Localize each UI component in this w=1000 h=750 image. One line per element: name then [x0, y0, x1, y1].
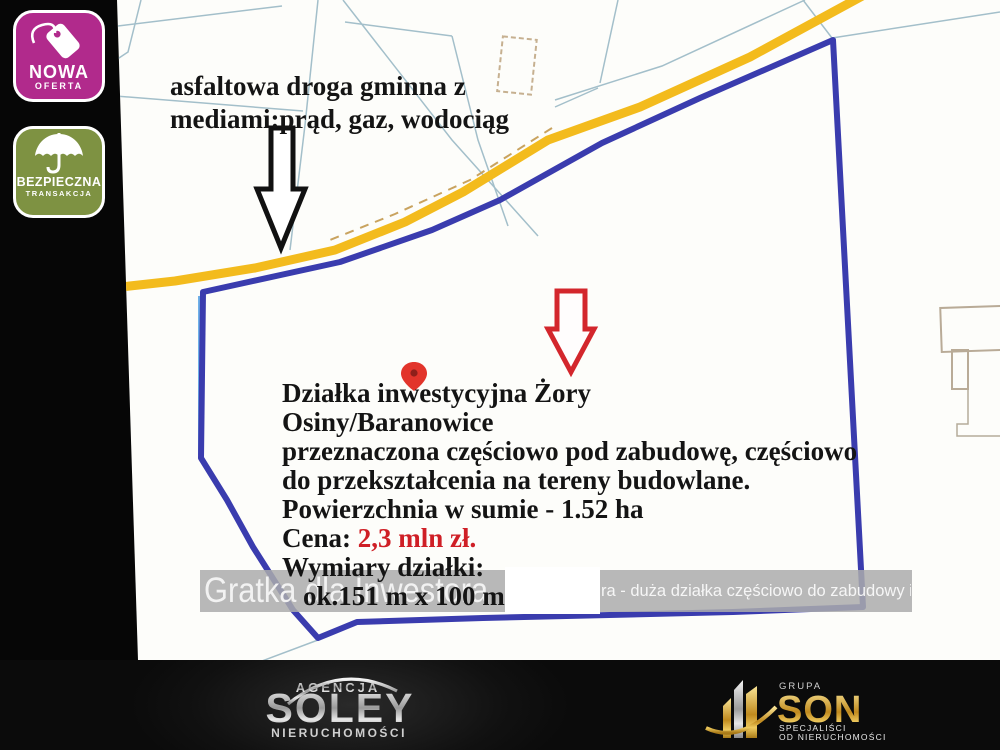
footer-logos: AGENCJA SOLEY NIERUCHOMOŚCI GRUPA SON SP… — [0, 660, 1000, 750]
price-tag-icon — [16, 15, 102, 63]
watermark-listing-text: ra - duża działka częściowo do zabudowy … — [601, 570, 911, 612]
badge-new-offer-subtitle: OFERTA — [16, 81, 102, 92]
price-label: Cena: — [282, 523, 358, 553]
son-logo: GRUPA SON SPECJALIŚCI OD NIERUCHOMOŚCI — [706, 680, 887, 742]
badge-safe-transaction: BEZPIECZNA TRANSAKCJA — [13, 126, 105, 218]
badge-new-offer-title: NOWA — [16, 63, 102, 81]
listing-zoning-1: przeznaczona częściowo pod zabudowę, czę… — [282, 437, 857, 466]
soley-name: SOLEY — [266, 685, 415, 731]
road-annotation: asfaltowa droga gminna z mediami:prąd, g… — [170, 70, 509, 136]
footer-bar: AGENCJA SOLEY NIERUCHOMOŚCI GRUPA SON SP… — [0, 660, 1000, 750]
umbrella-icon — [16, 131, 102, 175]
road-annotation-line2: mediami:prąd, gaz, wodociąg — [170, 103, 509, 136]
badge-new-offer: NOWA OFERTA — [13, 10, 105, 102]
son-building-icon — [706, 680, 776, 738]
price-value: 2,3 mln zł. — [358, 523, 477, 553]
son-sub-label-2: OD NIERUCHOMOŚCI — [779, 731, 887, 742]
watermark-white-patch — [505, 567, 600, 614]
real-estate-ad-image: asfaltowa droga gminna z mediami:prąd, g… — [0, 0, 1000, 750]
soley-bottom-label: NIERUCHOMOŚCI — [271, 725, 407, 740]
soley-logo: AGENCJA SOLEY NIERUCHOMOŚCI — [266, 679, 415, 740]
listing-title: Działka inwestycyjna Żory — [282, 379, 857, 408]
listing-zoning-2: do przekształcenia na tereny budowlane. — [282, 466, 857, 495]
badge-safe-subtitle: TRANSAKCJA — [16, 189, 102, 199]
road-annotation-line1: asfaltowa droga gminna z — [170, 70, 509, 103]
badge-safe-title: BEZPIECZNA — [16, 175, 102, 189]
listing-price: Cena: 2,3 mln zł. — [282, 524, 857, 553]
listing-location: Osiny/Baranowice — [282, 408, 857, 437]
listing-area: Powierzchnia w sumie - 1.52 ha — [282, 495, 857, 524]
